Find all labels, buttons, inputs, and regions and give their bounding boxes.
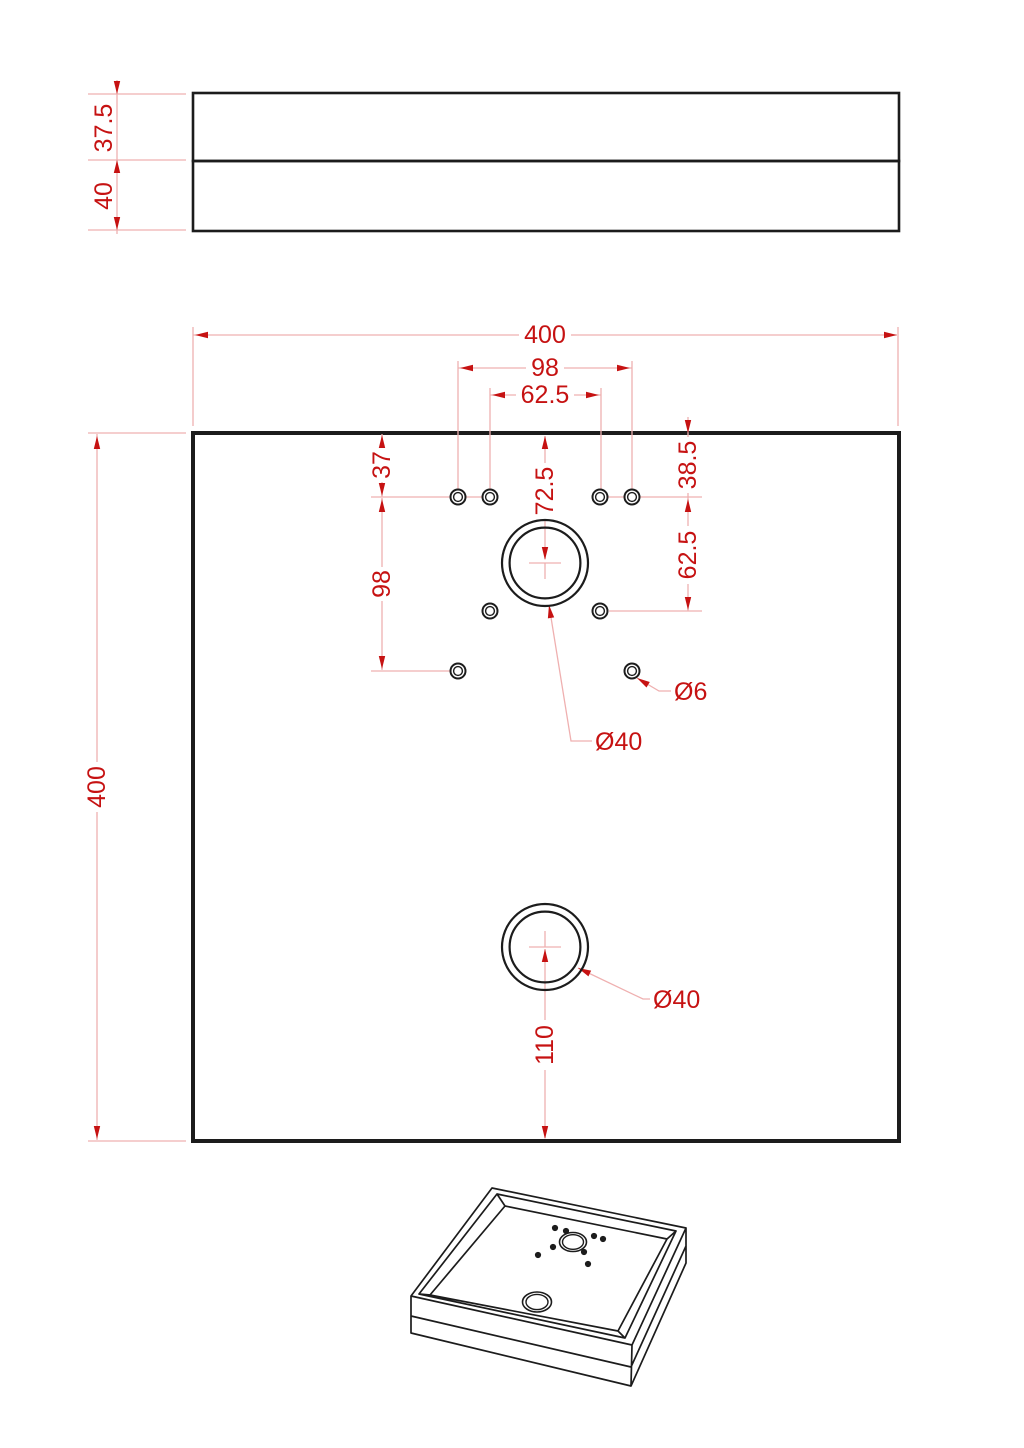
bolt-hole-inner [454, 667, 463, 676]
label-small-hole-dia: Ø6 [674, 678, 707, 706]
dim-lower-thickness: 40 [90, 182, 118, 210]
dim-offset-top-right: 38.5 [674, 441, 702, 490]
side-view: 37.5 40 [88, 80, 899, 234]
plan-leader-lines [549, 605, 671, 999]
bolt-holes [451, 490, 640, 679]
iso-bolt-hole [585, 1261, 591, 1267]
bolt-hole-inner [596, 607, 605, 616]
iso-drain-hole-inner [526, 1294, 548, 1309]
iso-holes [523, 1225, 607, 1312]
arrowhead [379, 483, 385, 496]
arrowhead [114, 160, 120, 173]
bolt-hole [451, 490, 466, 505]
arrowhead [617, 365, 630, 371]
iso-bolt-hole [600, 1236, 606, 1242]
dim-upper-thickness: 37.5 [90, 104, 118, 153]
bolt-hole-inner [628, 493, 637, 502]
dim-bolt-span-left: 98 [368, 570, 396, 598]
arrowhead [114, 217, 120, 230]
arrowhead [195, 332, 208, 338]
arrowhead [379, 656, 385, 669]
plan-dimension-lines [97, 335, 897, 1140]
label-center-hole-dia: Ø40 [595, 728, 642, 756]
iso-bolt-hole [581, 1249, 587, 1255]
arrowhead [685, 499, 691, 512]
iso-bolt-hole [535, 1252, 541, 1258]
arrowhead [460, 365, 473, 371]
dim-center-hole-offset: 72.5 [531, 467, 559, 516]
arrowhead [586, 392, 599, 398]
arrowhead [542, 436, 548, 449]
dim-bolt-span-right: 62.5 [674, 531, 702, 580]
bolt-hole-inner [628, 667, 637, 676]
arrowhead [379, 435, 385, 448]
dim-bolt-span-inner: 62.5 [521, 381, 570, 409]
bolt-hole [625, 490, 640, 505]
plan-arrowheads [94, 332, 897, 1139]
plan-extension-lines [88, 327, 898, 1141]
arrowhead [542, 547, 548, 560]
bolt-hole [451, 664, 466, 679]
arrowhead [685, 597, 691, 610]
iso-bolt-hole [591, 1233, 597, 1239]
dim-drain-offset-bottom: 110 [531, 1025, 559, 1065]
bolt-hole [483, 490, 498, 505]
bolt-hole [483, 604, 498, 619]
arrowhead [492, 392, 505, 398]
dim-bolt-span-outer: 98 [531, 354, 559, 382]
bolt-hole [625, 664, 640, 679]
dim-offset-top-left: 37 [368, 451, 396, 479]
bolt-hole-inner [486, 607, 495, 616]
arrowhead [94, 436, 100, 449]
arrowhead [542, 949, 548, 962]
arrowhead [884, 332, 897, 338]
label-drain-hole-dia: Ø40 [653, 986, 700, 1014]
bolt-hole-inner [454, 493, 463, 502]
bolt-hole [593, 490, 608, 505]
bolt-hole-inner [596, 493, 605, 502]
technical-drawing-canvas: 37.5 40 [0, 0, 1024, 1448]
bolt-hole-inner [486, 493, 495, 502]
side-view-lower-plate [193, 161, 899, 231]
bolt-hole [593, 604, 608, 619]
iso-bolt-hole [552, 1225, 558, 1231]
dim-height: 400 [83, 766, 111, 808]
isometric-view [411, 1188, 686, 1386]
iso-center-hole-inner [563, 1235, 584, 1250]
iso-bolt-hole [550, 1244, 556, 1250]
arrowhead [379, 499, 385, 512]
drawing-sheet: 37.5 40 [0, 0, 1024, 1448]
iso-bolt-hole [563, 1228, 569, 1234]
side-view-upper-plate [193, 93, 899, 161]
iso-tray-body [411, 1188, 686, 1386]
dim-width: 400 [524, 321, 566, 349]
plan-view: 400 98 62.5 400 37 98 72.5 38.5 62.5 110… [83, 321, 899, 1141]
arrowhead [542, 1126, 548, 1139]
arrowhead [114, 81, 120, 94]
arrowhead [94, 1126, 100, 1139]
